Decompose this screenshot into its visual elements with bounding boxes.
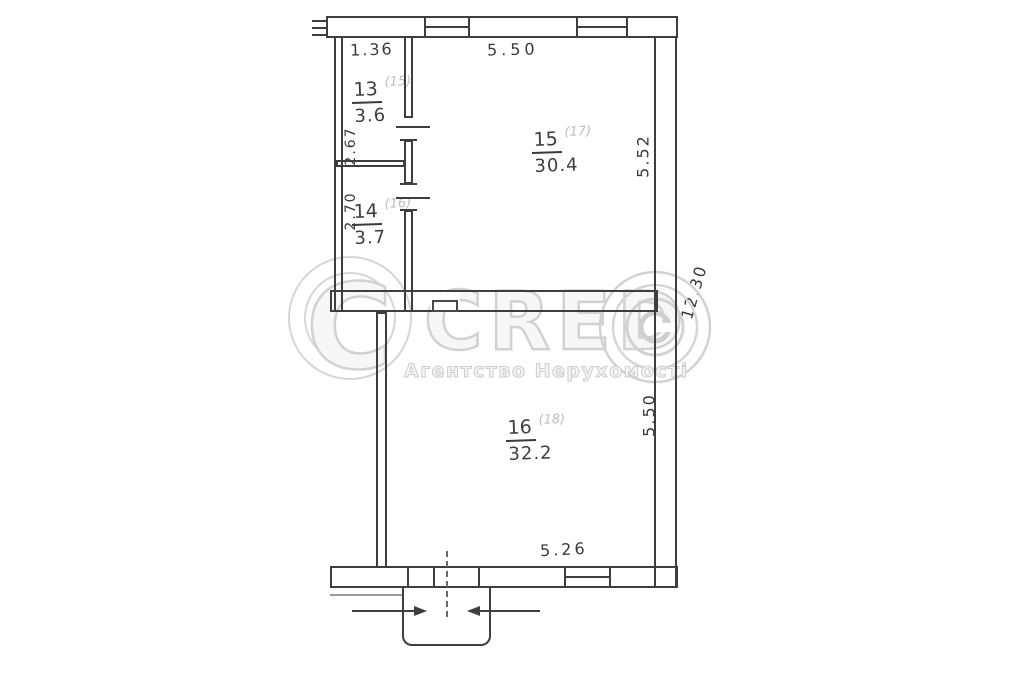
partition-vertical-segment — [404, 36, 413, 118]
partition-room13-room14 — [336, 160, 405, 167]
room16-left-wall — [376, 312, 387, 568]
door-jamb-tick — [400, 139, 417, 141]
middle-wall — [330, 290, 658, 312]
window-mullion — [578, 26, 626, 28]
window-symbol-top-2 — [576, 16, 628, 38]
door-opening-symbol — [432, 300, 458, 312]
entrance-jamb-tick — [407, 566, 409, 588]
plan-linework — [0, 0, 1024, 682]
window-mullion — [426, 26, 468, 28]
end-window-line — [312, 20, 328, 22]
entrance-axis-line — [446, 551, 448, 617]
partition-vertical-segment — [404, 140, 413, 184]
end-window-line — [312, 27, 328, 29]
entrance-jamb-tick — [478, 566, 480, 588]
door-jamb-tick — [400, 209, 417, 211]
bottom-wall — [330, 566, 678, 588]
entrance-jamb-tick — [433, 566, 435, 588]
window-symbol-top-1 — [424, 16, 470, 38]
window-mullion — [566, 576, 609, 578]
door-jamb-tick — [400, 183, 417, 185]
arrow-head-left-icon — [467, 606, 480, 616]
door-jamb-tick — [396, 197, 430, 199]
right-wall — [654, 36, 677, 588]
window-symbol-bottom — [564, 566, 611, 588]
exterior-step-line — [330, 594, 402, 596]
upper-left-wall — [334, 36, 343, 312]
door-jamb-tick — [396, 126, 430, 128]
arrow-head-right-icon — [414, 606, 427, 616]
entrance-arrow-left — [352, 610, 414, 612]
entrance-arrow-right — [480, 610, 540, 612]
end-window-line — [312, 34, 328, 36]
floor-plan-page: C CRED Агентство Нерухомості — [0, 0, 1024, 682]
